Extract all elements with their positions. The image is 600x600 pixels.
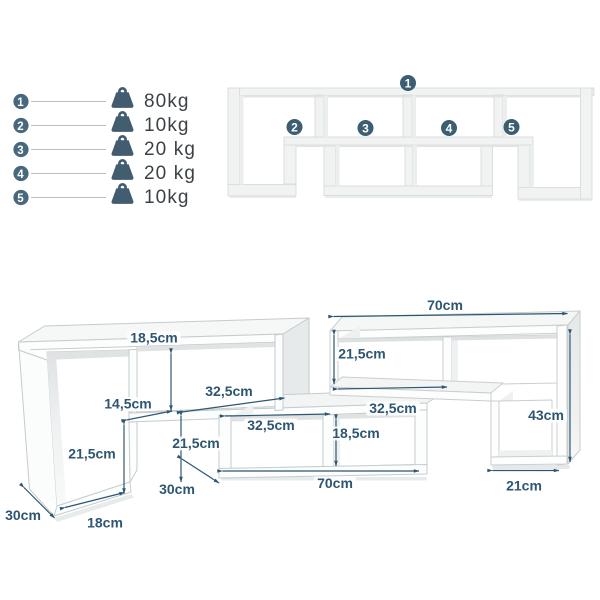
svg-text:32,5cm: 32,5cm	[247, 417, 294, 433]
svg-text:70cm: 70cm	[427, 297, 463, 313]
svg-text:30cm: 30cm	[159, 481, 195, 497]
svg-text:32,5cm: 32,5cm	[205, 383, 252, 399]
svg-text:20 kg: 20 kg	[144, 163, 196, 184]
svg-text:80kg: 80kg	[144, 91, 190, 112]
svg-text:3: 3	[17, 145, 25, 157]
svg-text:14,5cm: 14,5cm	[104, 396, 151, 412]
svg-text:43cm: 43cm	[528, 407, 564, 423]
svg-text:21cm: 21cm	[506, 478, 542, 494]
svg-text:30cm: 30cm	[5, 507, 41, 523]
svg-text:18,5cm: 18,5cm	[130, 330, 177, 346]
svg-text:20 kg: 20 kg	[144, 139, 196, 160]
svg-text:4: 4	[446, 122, 453, 136]
svg-text:1: 1	[405, 77, 412, 91]
svg-text:10kg: 10kg	[144, 187, 190, 208]
svg-text:5: 5	[17, 193, 25, 205]
svg-text:32,5cm: 32,5cm	[369, 400, 416, 416]
svg-text:21,5cm: 21,5cm	[172, 435, 219, 451]
svg-text:18cm: 18cm	[87, 515, 123, 531]
svg-text:4: 4	[17, 169, 25, 181]
svg-text:2: 2	[17, 121, 25, 133]
svg-text:1: 1	[17, 97, 25, 109]
svg-text:21,5cm: 21,5cm	[68, 446, 115, 462]
svg-text:21,5cm: 21,5cm	[338, 346, 385, 362]
svg-text:18,5cm: 18,5cm	[332, 425, 379, 441]
svg-text:70cm: 70cm	[317, 475, 353, 491]
svg-text:5: 5	[508, 121, 515, 135]
svg-text:3: 3	[362, 122, 369, 136]
svg-text:2: 2	[291, 121, 298, 135]
svg-text:10kg: 10kg	[144, 115, 190, 136]
